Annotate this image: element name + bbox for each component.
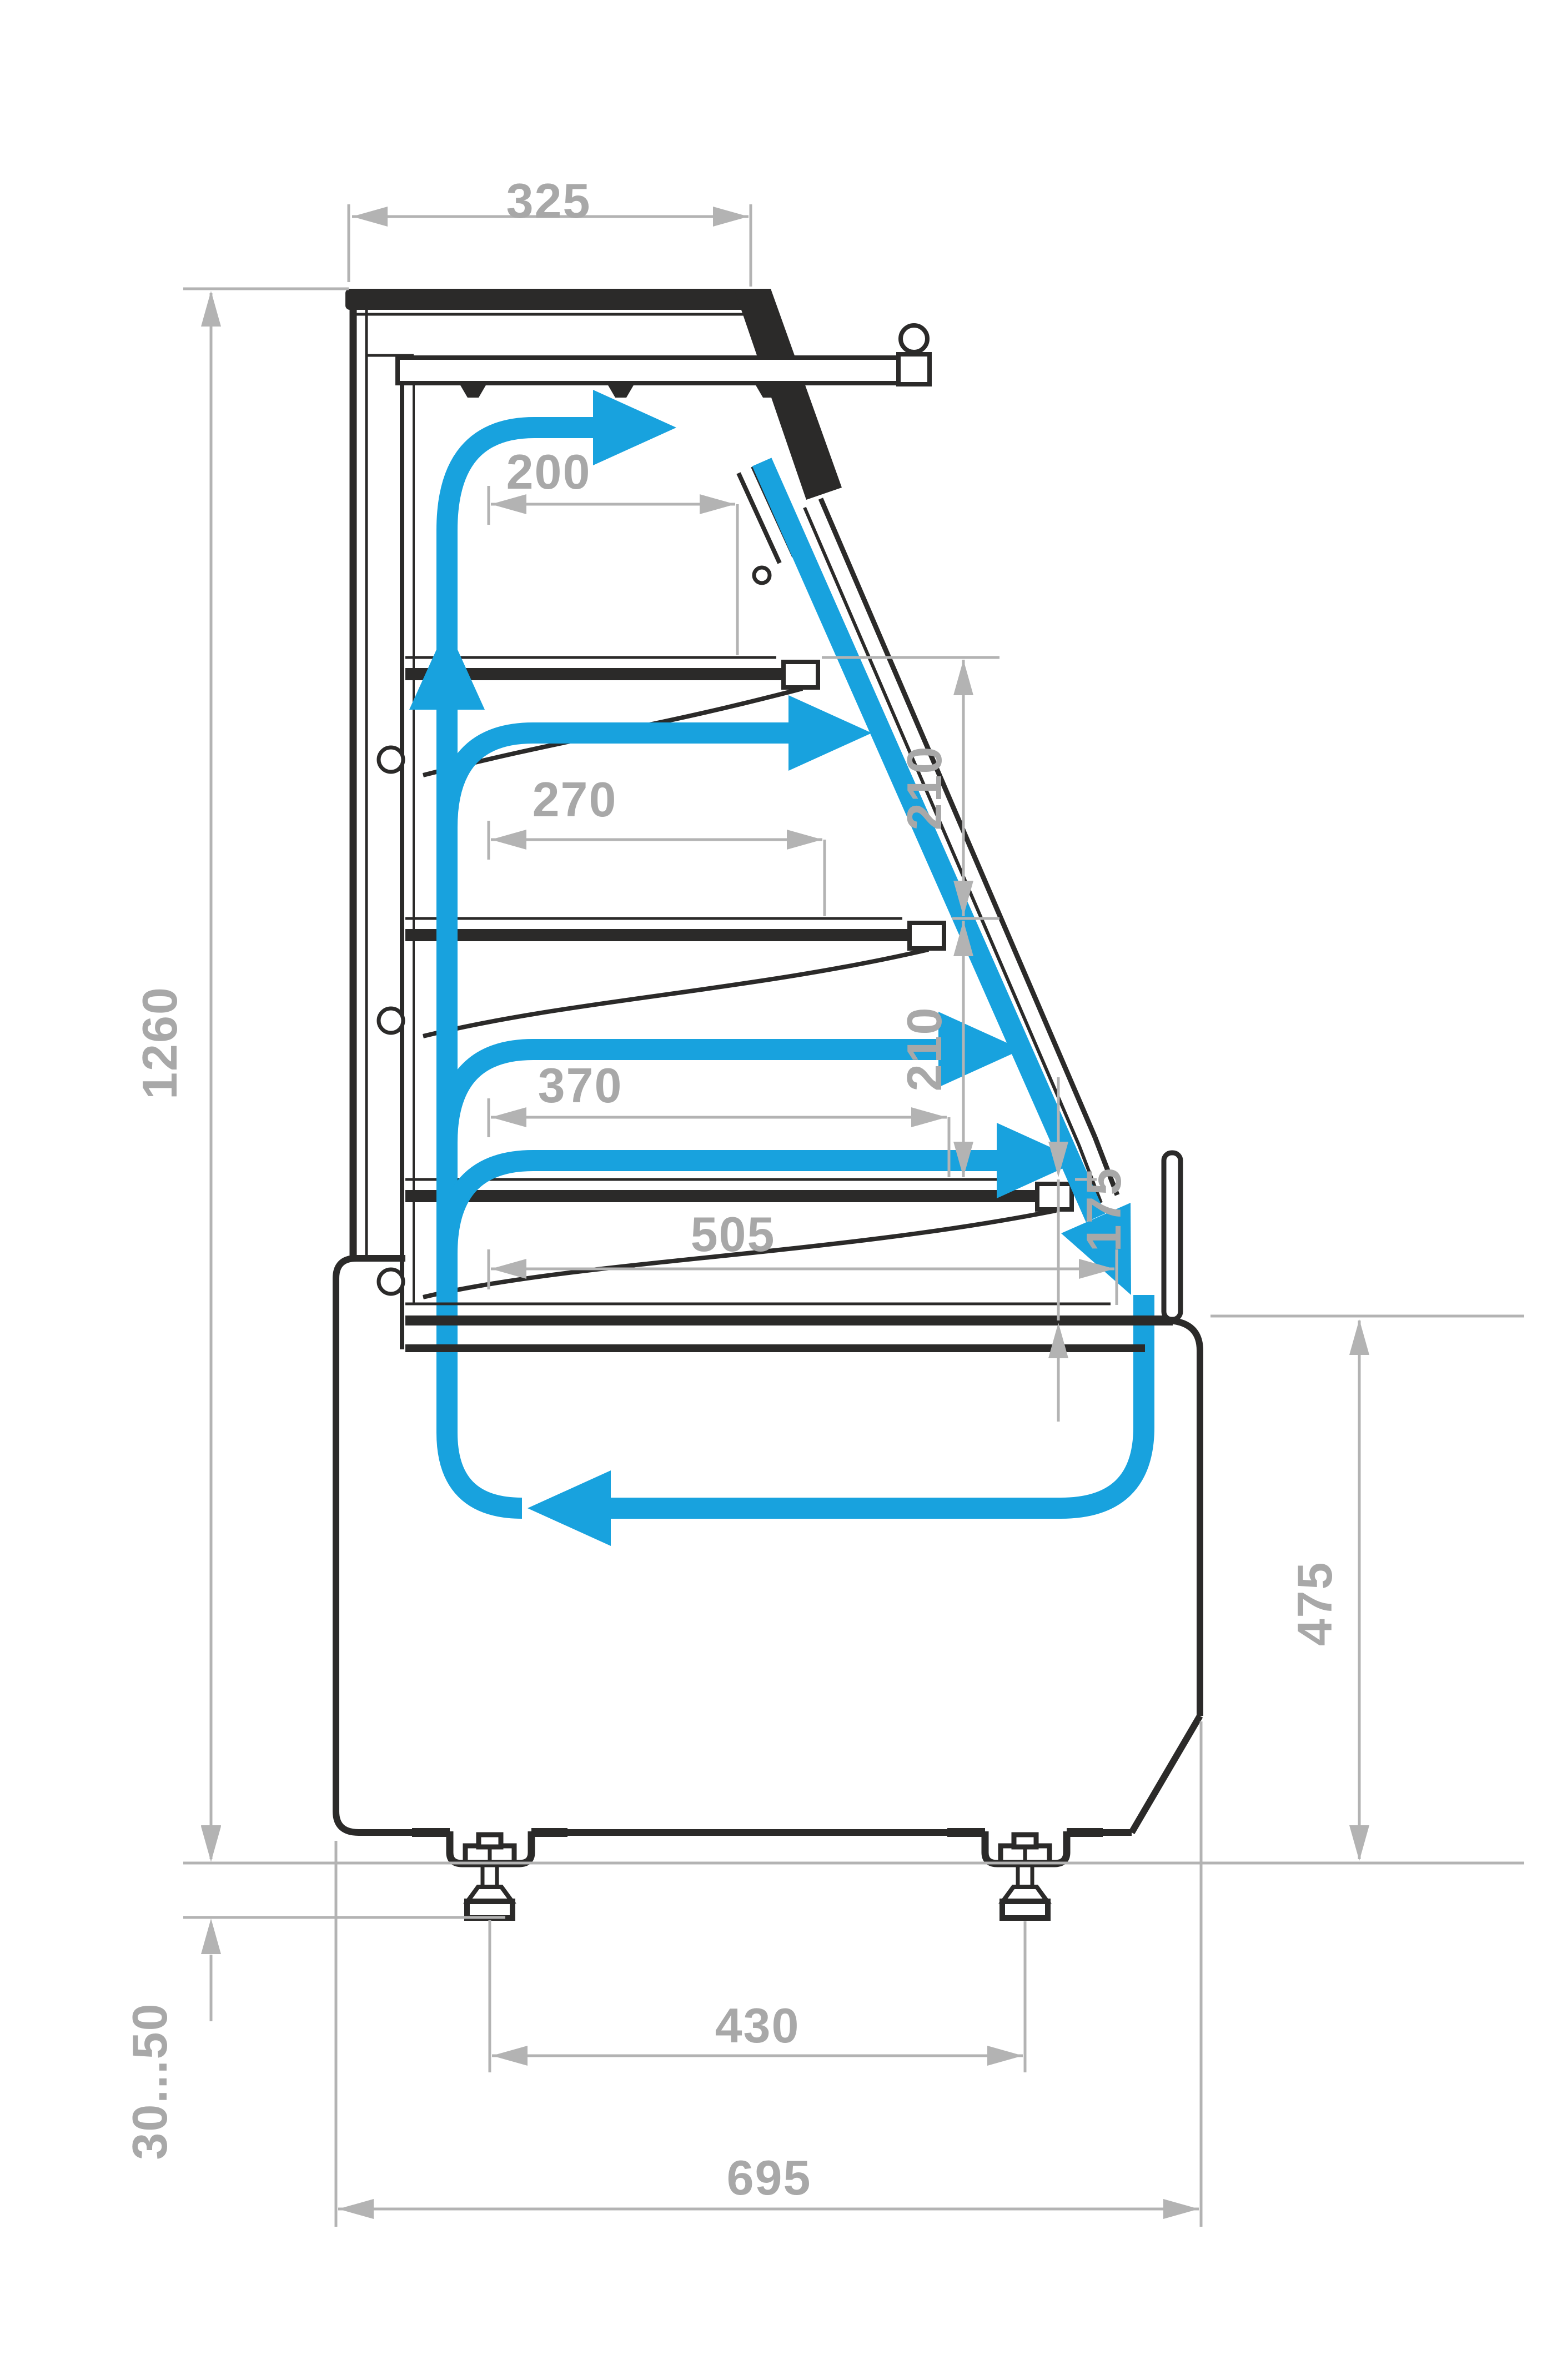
shelf-mount-screw — [379, 1008, 403, 1033]
label-front-glass-height: 175 — [1076, 1167, 1131, 1252]
label-leg-adjustment: 30...50 — [122, 2002, 177, 2160]
shelf-mount-screw — [379, 747, 403, 772]
arrowhead-top — [1349, 1319, 1369, 1355]
foot-stem — [479, 1835, 501, 1847]
arrowhead-right — [713, 207, 749, 227]
vane-end-knob — [754, 568, 770, 583]
shelf-mount-screw — [379, 1269, 403, 1294]
canopy-slant-edge — [734, 289, 842, 500]
arrowhead-left — [491, 1107, 526, 1127]
arrowhead-right — [911, 1107, 947, 1127]
airflow-arrowhead-return — [528, 1470, 611, 1546]
airflow-front-down-and-return — [611, 1295, 1144, 1508]
shelf-front-cap — [910, 923, 944, 948]
dim-overall-height — [201, 291, 221, 1861]
foot-right — [947, 1831, 1103, 1918]
lamp-clip-1 — [460, 384, 486, 398]
base-front-chamfer — [1132, 1716, 1200, 1832]
front-glass — [805, 499, 1117, 1203]
airflow-arrowhead-top — [593, 390, 676, 465]
label-shelf2-depth: 270 — [533, 772, 617, 827]
airflow-shelf1-branch — [447, 733, 788, 827]
label-shelf1-depth: 200 — [506, 444, 591, 499]
back-duct — [353, 310, 414, 1349]
arrowhead-right — [1163, 2199, 1199, 2219]
arrowhead-top — [953, 660, 973, 695]
dim-base-front-height — [1349, 1319, 1369, 1861]
label-gap-upper: 210 — [897, 746, 952, 831]
arrowhead-right — [700, 494, 735, 514]
shelf-2 — [379, 918, 944, 1036]
extension-lines — [183, 204, 1524, 2227]
arrowhead-right — [787, 830, 822, 850]
label-base-front-height: 475 — [1287, 1561, 1342, 1646]
foot-left — [412, 1831, 567, 1918]
label-gap-lower: 210 — [897, 1007, 952, 1092]
arrowhead-left — [492, 2046, 528, 2066]
case-side-section-diagram: 325 200 270 370 505 210 210 175 1260 475… — [0, 0, 1542, 2380]
canopy-top-bar — [345, 289, 751, 310]
arrowhead-left — [352, 207, 388, 227]
label-overall-depth: 695 — [727, 2150, 812, 2205]
foot-pad — [467, 1901, 513, 1918]
arrowhead-top — [201, 291, 221, 327]
arrowhead-bottom — [1349, 1825, 1369, 1861]
shelf-front-cap — [1037, 1184, 1072, 1209]
lamp-end-cap — [901, 325, 927, 352]
airflow — [409, 390, 1144, 1546]
lamp-housing — [398, 358, 898, 383]
dim-leg-adjustment — [201, 1766, 221, 2021]
foot-pad — [1002, 1901, 1048, 1918]
dimension-labels: 325 200 270 370 505 210 210 175 1260 475… — [122, 173, 1342, 2205]
arrowhead-bottom — [1048, 1323, 1068, 1358]
counter-front-corner — [1169, 1320, 1200, 1716]
label-overall-height: 1260 — [132, 986, 187, 1099]
arrowhead-right — [987, 2046, 1023, 2066]
airflow-shelf2-branch — [447, 1050, 938, 1143]
front-panel-glass — [1164, 1153, 1181, 1319]
label-shelf3-depth: 370 — [538, 1058, 623, 1113]
label-leg-spacing: 430 — [715, 1998, 800, 2053]
label-well-depth: 505 — [691, 1207, 776, 1262]
diagram-stage: 325 200 270 370 505 210 210 175 1260 475… — [0, 0, 1542, 2380]
lamp-clip-2 — [607, 384, 634, 398]
dim-well-depth — [491, 1259, 1114, 1279]
arrowhead-bottom — [201, 1919, 221, 1954]
foot-stem — [1014, 1835, 1036, 1847]
arrowhead-left — [491, 1259, 526, 1279]
shelf-front-cap — [783, 662, 818, 687]
dim-shelf2-depth — [491, 830, 822, 850]
arrowhead-left — [338, 2199, 374, 2219]
dimensions — [183, 204, 1524, 2227]
arrowhead-left — [491, 830, 526, 850]
lamp-end-bracket — [898, 354, 930, 384]
shelf-support — [423, 950, 928, 1036]
label-canopy-depth: 325 — [506, 173, 591, 228]
arrowhead-top — [201, 1826, 221, 1862]
